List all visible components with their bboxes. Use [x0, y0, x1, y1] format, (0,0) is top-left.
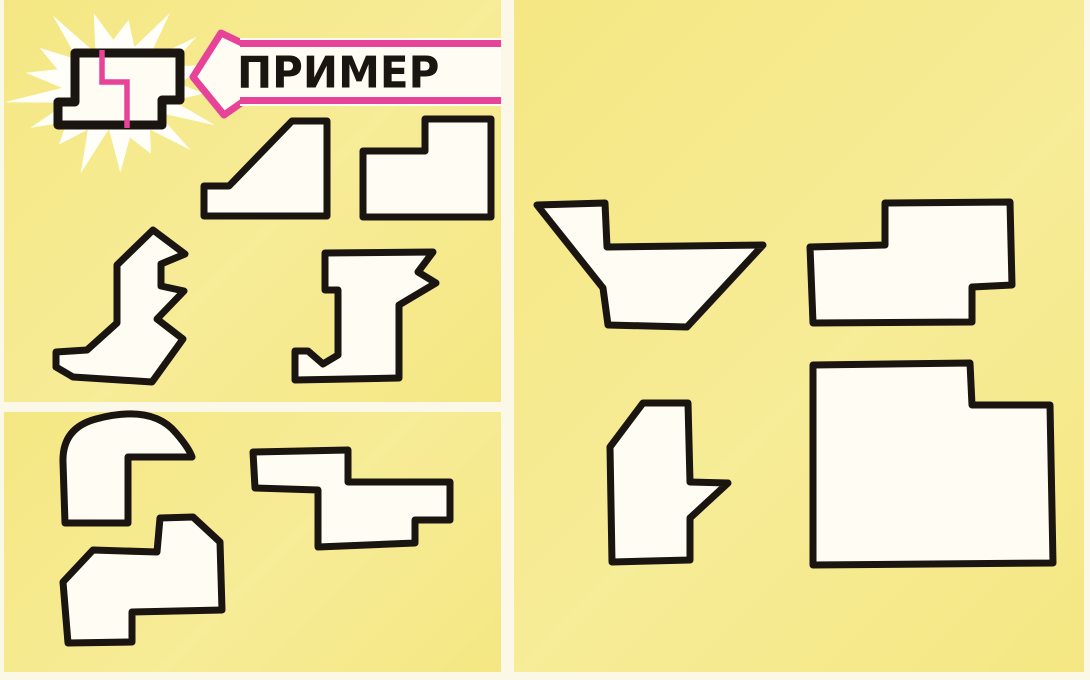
piece-step-block-top	[363, 119, 491, 217]
piece-boot	[63, 517, 222, 643]
piece-ramp	[204, 121, 327, 216]
arrow-label: ПРИМЕР	[237, 51, 439, 95]
piece-j-block	[295, 252, 436, 380]
arrow-shaft-bottom-rail	[240, 97, 501, 104]
piece-check-flag	[537, 203, 763, 327]
puzzle-pieces	[56, 119, 1053, 643]
piece-step-block-right	[810, 202, 1012, 323]
example-assembly	[58, 50, 180, 128]
puzzle-page: ПРИМЕР	[0, 0, 1090, 680]
example-outline	[58, 53, 180, 125]
piece-z-block	[253, 450, 450, 547]
piece-big-block	[813, 363, 1053, 565]
puzzle-artwork	[0, 0, 1090, 680]
piece-spiked-boot	[56, 230, 185, 382]
piece-notched-column	[610, 403, 728, 562]
piece-wave-hook	[63, 414, 192, 523]
